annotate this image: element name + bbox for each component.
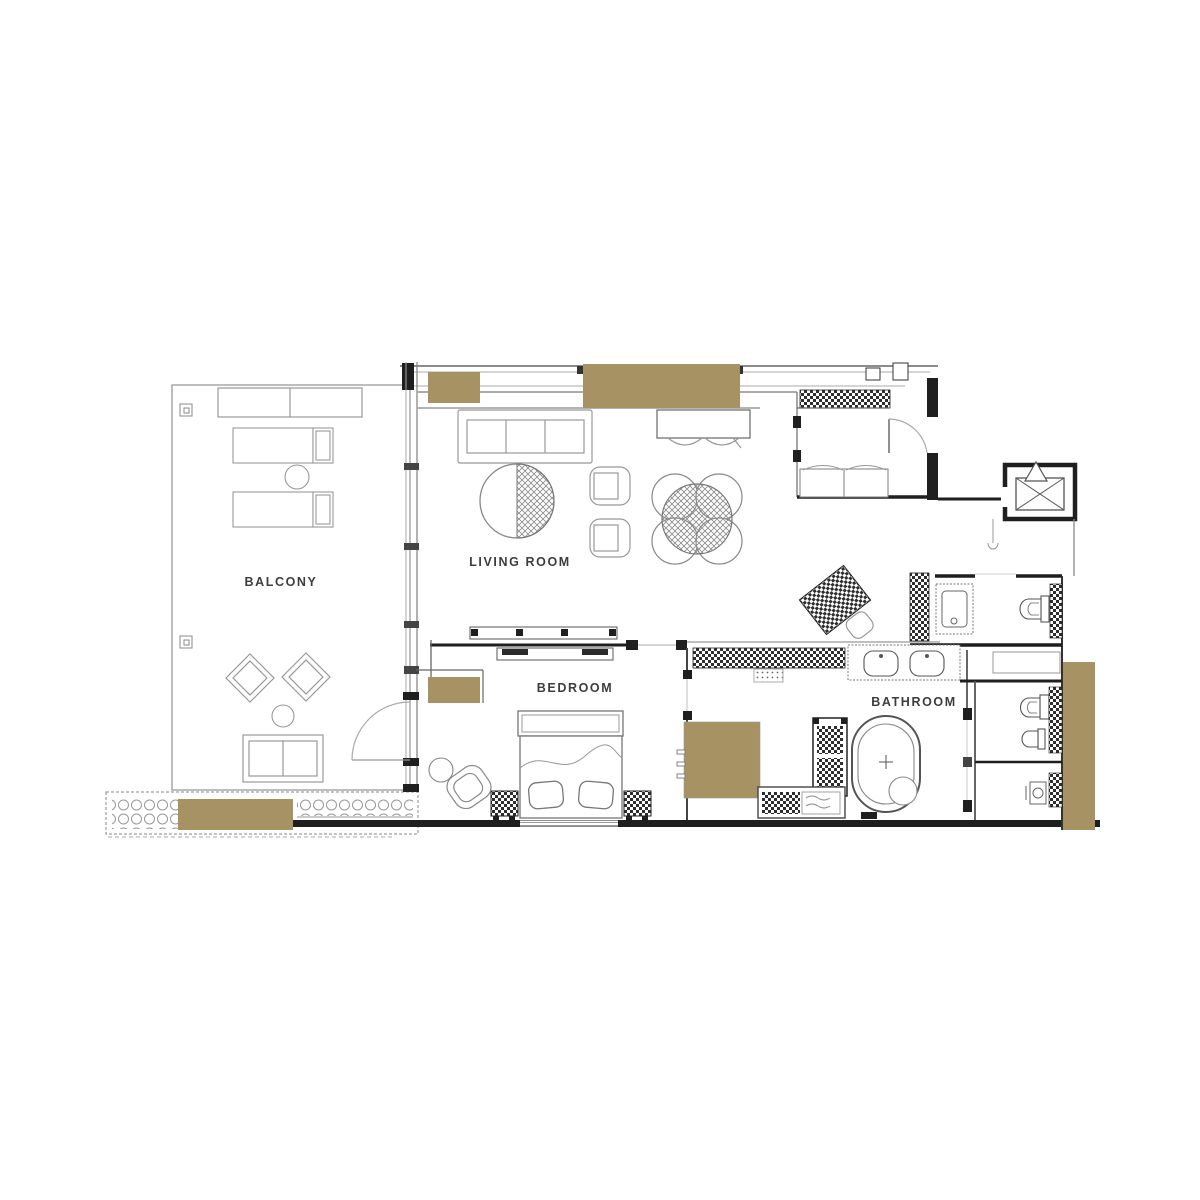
tub-stool xyxy=(889,777,917,805)
bedroom-room xyxy=(416,640,692,820)
desk xyxy=(799,565,885,653)
pillow-right xyxy=(578,781,614,810)
foyer-closet xyxy=(800,390,890,408)
gold-accent-planter xyxy=(178,799,293,830)
powder-vanity xyxy=(936,584,973,634)
bathroom-label: BATHROOM xyxy=(871,695,956,709)
bathroom-bench xyxy=(758,787,845,818)
powder-toilet xyxy=(1020,596,1049,622)
elevator-area xyxy=(938,462,1075,576)
nightstand-left xyxy=(491,791,518,820)
chair-side-table xyxy=(429,758,453,782)
armchair-2 xyxy=(590,519,630,557)
bedroom-label: BEDROOM xyxy=(537,681,613,695)
sun-lounger-1 xyxy=(233,428,333,463)
bed xyxy=(518,711,623,818)
balcony-chair-2 xyxy=(282,653,330,701)
planter-strip xyxy=(106,792,418,837)
wc-room xyxy=(960,652,1095,830)
balcony-wall-fixtures xyxy=(180,404,192,648)
tv-console xyxy=(657,410,750,448)
gold-accent-bedroom-wardrobe xyxy=(428,677,480,703)
dresser xyxy=(497,648,613,660)
bathroom-room xyxy=(677,642,972,819)
living-room xyxy=(458,410,885,653)
dining-table xyxy=(652,474,742,564)
balcony-round-table xyxy=(272,705,294,727)
entry-door xyxy=(889,419,927,453)
south-wall xyxy=(293,820,1100,827)
duct-shaft xyxy=(910,573,929,641)
lounger-side-table xyxy=(285,465,309,489)
living-room-label: LIVING ROOM xyxy=(469,555,571,569)
bathroom-vanity xyxy=(848,645,960,680)
armchair-1 xyxy=(590,467,630,505)
balcony-label: BALCONY xyxy=(244,575,317,589)
balcony-loveseat xyxy=(243,735,323,782)
wc-toilet xyxy=(1021,695,1050,719)
balcony-console xyxy=(218,388,362,417)
wc-niche xyxy=(993,652,1060,673)
nightstand-right xyxy=(624,791,651,820)
towel-ladder xyxy=(677,750,685,778)
bathroom-shelf-column xyxy=(813,718,847,796)
pendant-light xyxy=(988,519,998,549)
entry-foyer xyxy=(793,363,939,500)
sun-lounger-2 xyxy=(233,492,333,527)
balcony-door xyxy=(352,702,410,760)
gold-accent-top-small xyxy=(428,372,480,403)
planter-lattice-right xyxy=(297,798,413,816)
sofa xyxy=(458,410,592,463)
bathtub xyxy=(852,716,920,819)
floor-plan-drawing: BALCONY LIVING ROOM BEDROOM BATHROOM xyxy=(0,0,1200,1200)
wc-bidet xyxy=(1022,729,1045,749)
floor-plan-page: BALCONY LIVING ROOM BEDROOM BATHROOM xyxy=(0,0,1200,1200)
foyer-bench xyxy=(800,466,888,498)
bath-mat xyxy=(754,669,783,682)
gold-accent-top-large xyxy=(583,364,740,408)
coffee-table xyxy=(480,464,554,538)
shower-fixture xyxy=(1026,782,1046,804)
pillow-left xyxy=(528,781,564,810)
gold-accent-east-wall xyxy=(1063,662,1095,830)
balcony-chair-1 xyxy=(226,654,274,702)
gold-accent-bathroom-block xyxy=(684,722,760,798)
bathroom-closet xyxy=(693,648,845,668)
wall-console xyxy=(470,627,617,639)
